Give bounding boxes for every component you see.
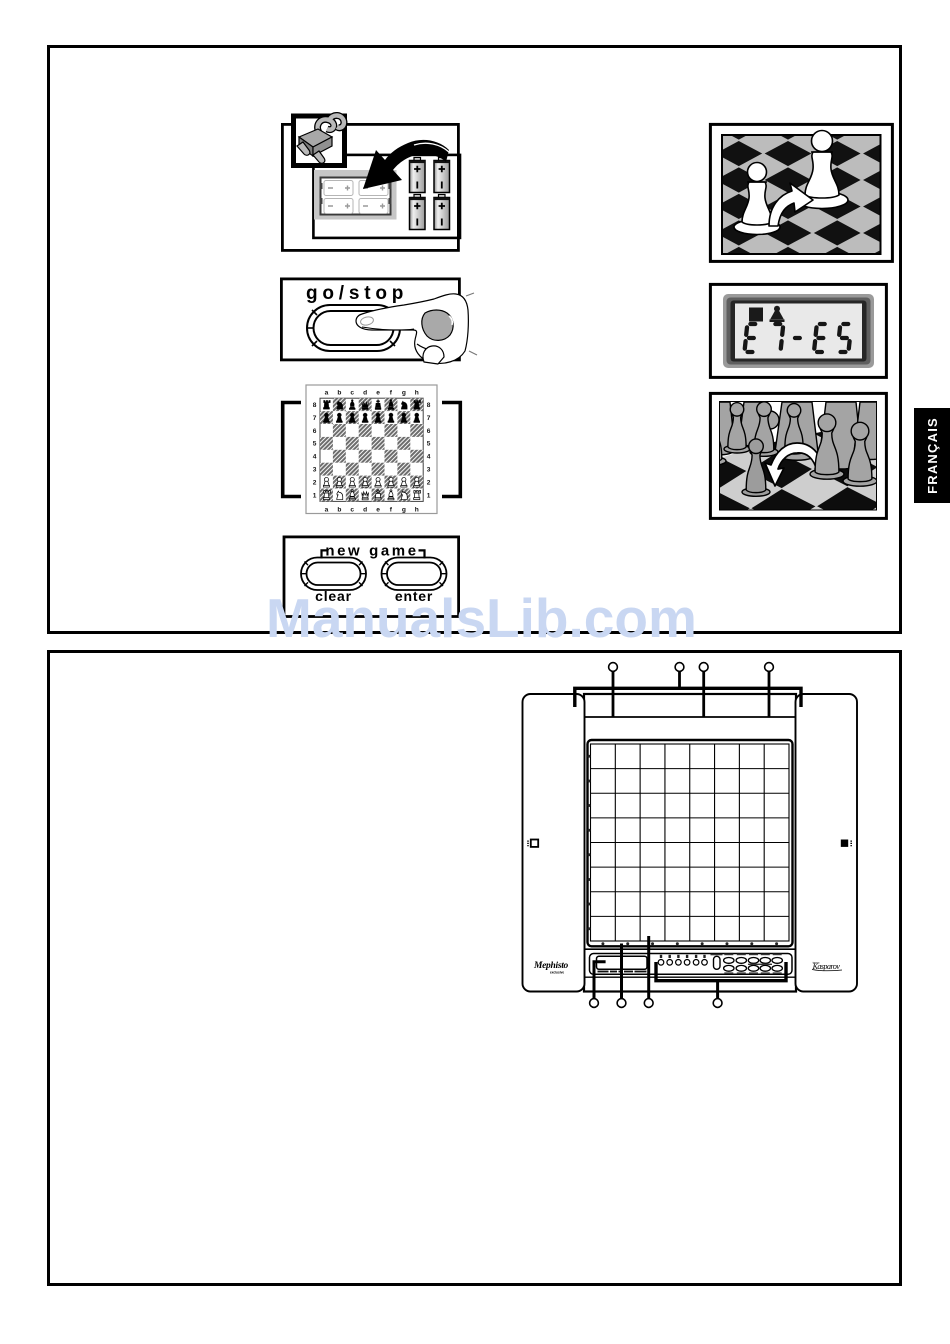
svg-text:5: 5 <box>313 441 317 448</box>
svg-text:b: b <box>337 506 341 513</box>
svg-text:2: 2 <box>313 479 317 486</box>
svg-text:d: d <box>363 389 367 396</box>
svg-text:g: g <box>402 506 406 513</box>
svg-text:4: 4 <box>313 454 317 461</box>
svg-text:c: c <box>350 506 354 513</box>
svg-text:3: 3 <box>427 467 431 474</box>
svg-text:h: h <box>415 389 419 396</box>
svg-text:b: b <box>337 389 341 396</box>
svg-text:1: 1 <box>313 492 317 499</box>
svg-text:go/stop: go/stop <box>306 283 408 304</box>
svg-text:5: 5 <box>427 441 431 448</box>
svg-text:team: team <box>813 961 820 965</box>
svg-text:exclusive: exclusive <box>550 971 565 975</box>
svg-text:6: 6 <box>427 428 431 435</box>
svg-text:8: 8 <box>427 402 431 409</box>
svg-text:6: 6 <box>313 428 317 435</box>
svg-text:7: 7 <box>427 415 431 422</box>
svg-text:4: 4 <box>427 454 431 461</box>
svg-text:e: e <box>376 389 380 396</box>
svg-text:a: a <box>325 506 329 513</box>
svg-text:a: a <box>325 389 329 396</box>
svg-text:c: c <box>350 389 354 396</box>
svg-text:1: 1 <box>427 492 431 499</box>
svg-text:g: g <box>402 389 406 396</box>
svg-text:Mephisto: Mephisto <box>533 961 569 971</box>
svg-text:8: 8 <box>313 402 317 409</box>
svg-text:2: 2 <box>427 479 431 486</box>
svg-text:h: h <box>415 506 419 513</box>
svg-text:e: e <box>376 506 380 513</box>
svg-text:d: d <box>363 506 367 513</box>
svg-text:3: 3 <box>313 467 317 474</box>
svg-text:7: 7 <box>313 415 317 422</box>
